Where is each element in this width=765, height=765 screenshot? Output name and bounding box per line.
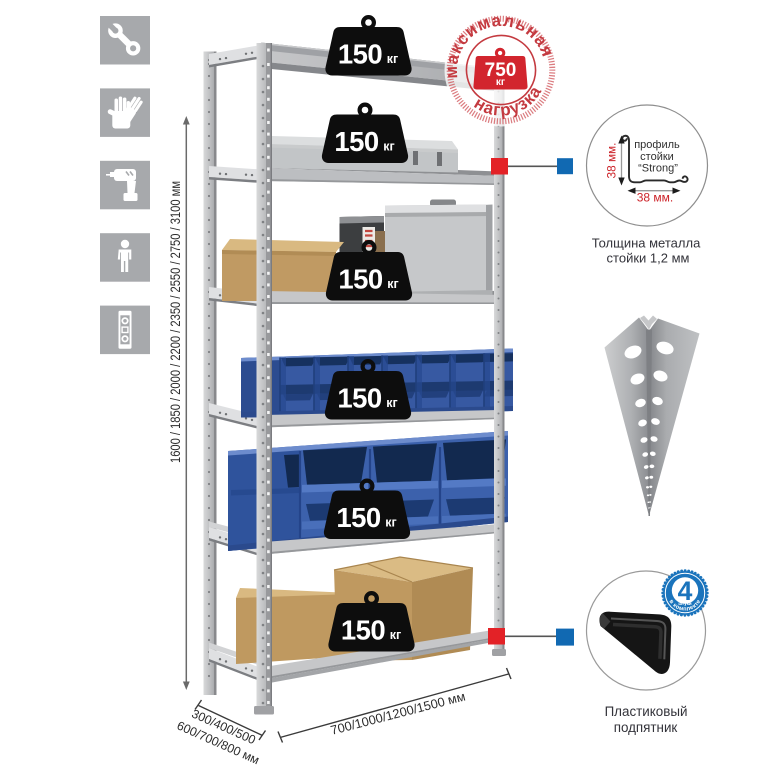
svg-text:профиль: профиль <box>634 139 680 151</box>
svg-text:700/1000/1200/1500 мм: 700/1000/1200/1500 мм <box>329 689 467 738</box>
svg-text:38 мм.: 38 мм. <box>605 143 619 179</box>
svg-text:Толщина металла: Толщина металла <box>592 236 701 251</box>
svg-text:кг: кг <box>496 77 505 88</box>
svg-text:1600 / 1850 / 2000 / 2200 / 23: 1600 / 1850 / 2000 / 2200 / 2350 / 2550 … <box>168 181 184 463</box>
svg-text:стойки 1,2 мм: стойки 1,2 мм <box>607 250 690 265</box>
svg-text:подпятник: подпятник <box>614 720 678 735</box>
svg-text:38 мм.: 38 мм. <box>637 191 674 205</box>
svg-text:стойки: стойки <box>640 151 674 163</box>
svg-text:штуки: штуки <box>678 601 692 606</box>
svg-text:“Strong”: “Strong” <box>638 163 678 175</box>
svg-text:Пластиковый: Пластиковый <box>605 704 688 719</box>
